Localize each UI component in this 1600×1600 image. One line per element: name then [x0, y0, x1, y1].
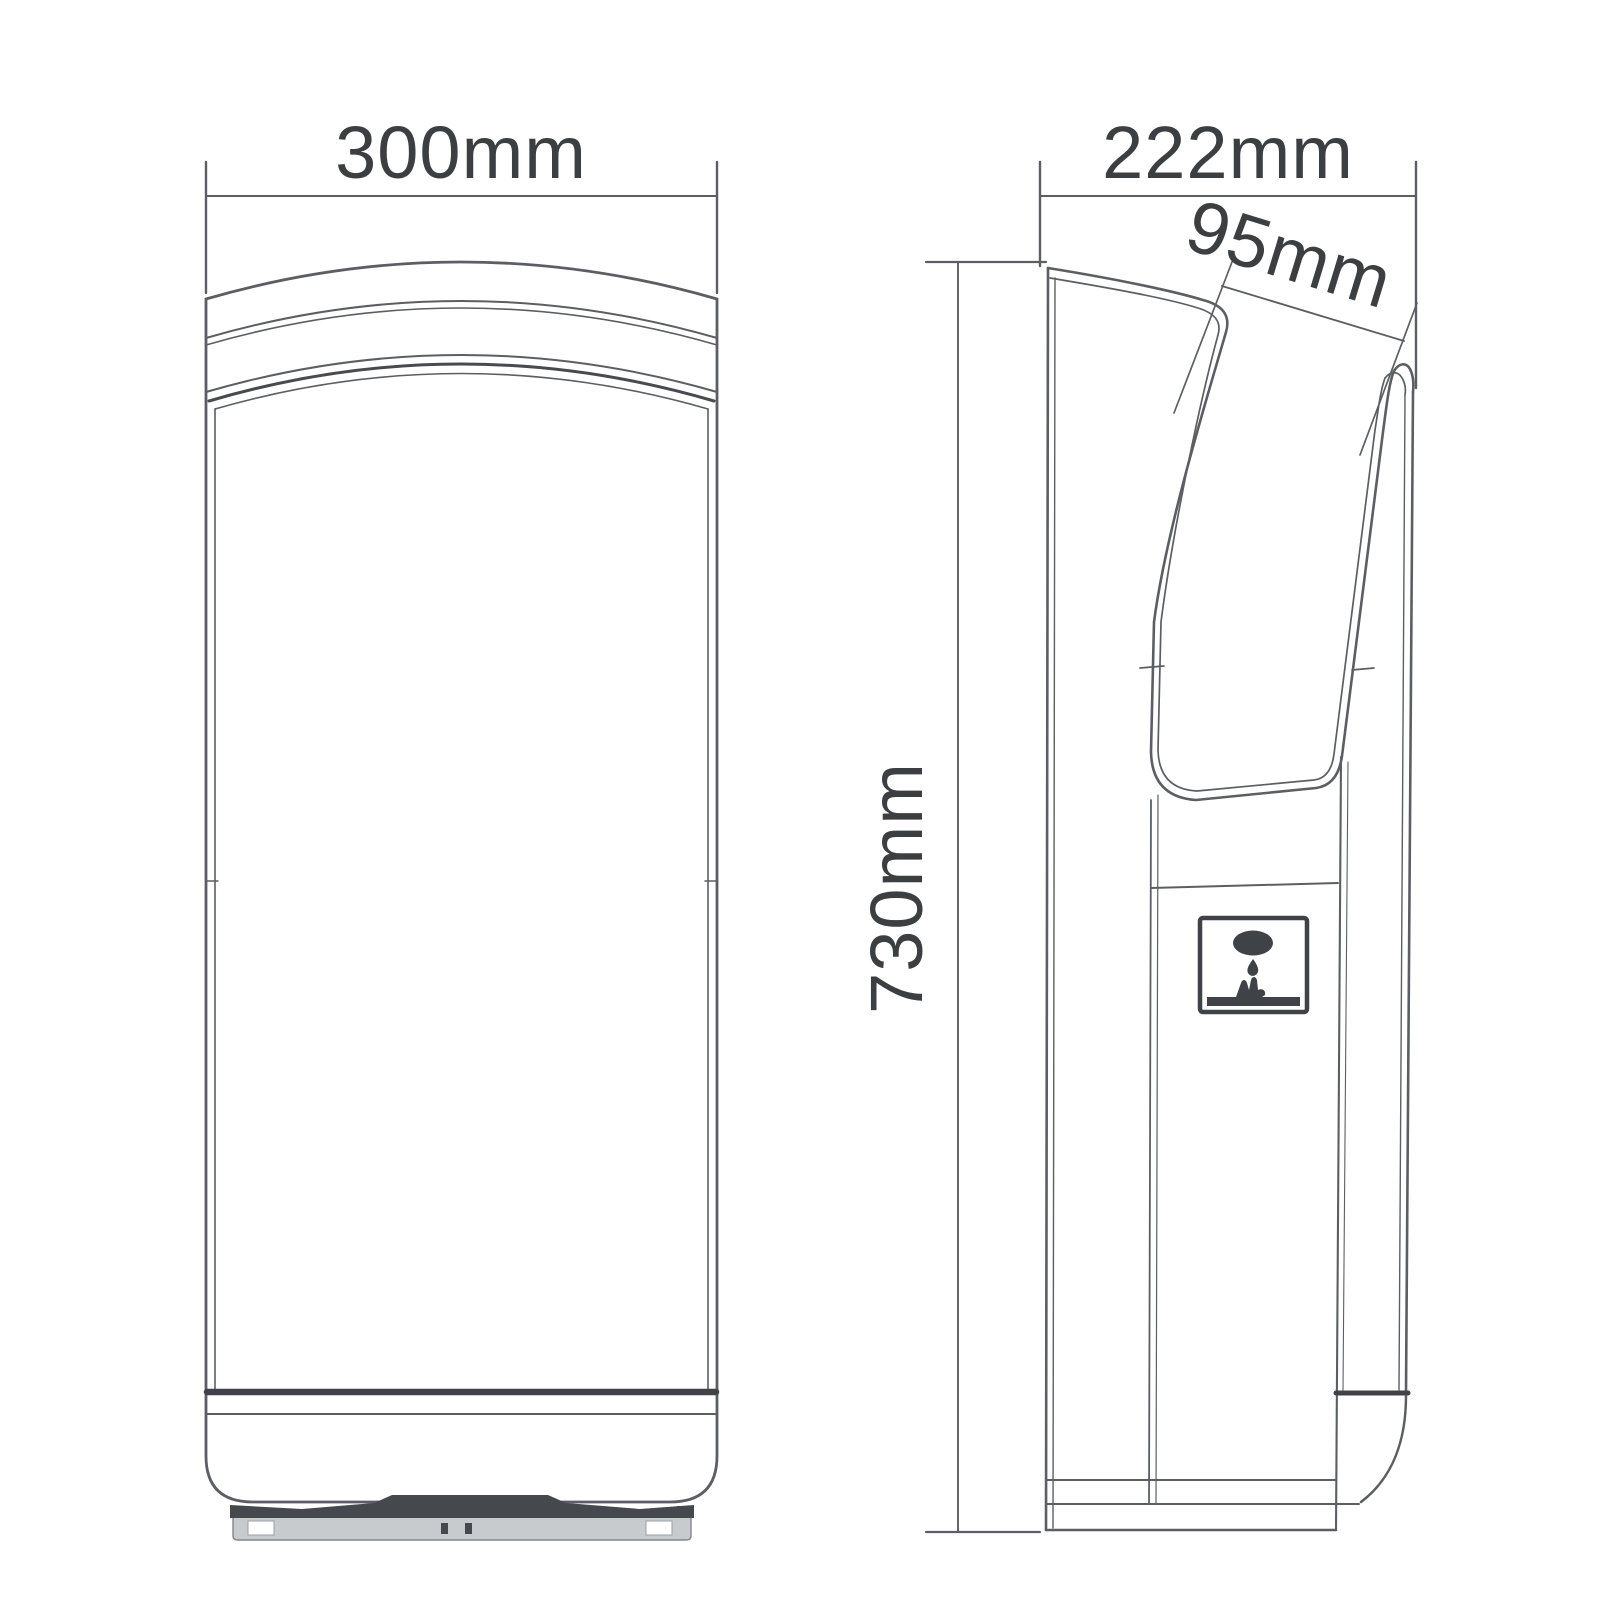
front-cap-band-line: [206, 301, 717, 338]
base-tray-vent: [282, 1512, 316, 1518]
side-front-edge-inner: [1053, 278, 1055, 1528]
base-tray-cutout: [646, 1521, 672, 1535]
dimension-label-width: 300mm: [335, 111, 587, 194]
dimension-extension: [1360, 303, 1417, 455]
side-slot-outline: [1048, 268, 1394, 800]
side-view: [926, 162, 1417, 1532]
side-front-edge: [1046, 268, 1048, 1530]
dimension-label-depth: 222mm: [1102, 111, 1354, 194]
base-tray-vent: [441, 1523, 448, 1534]
wall-break-tick: [1352, 668, 1374, 670]
drawing-canvas: 300mm 222mm 95mm 730mm: [0, 0, 1600, 1600]
front-panel-top-line: [209, 364, 714, 401]
side-rear-section-edge-inner: [1343, 762, 1348, 1390]
front-cap-band-line: [206, 308, 717, 345]
side-blade-tip: [1394, 364, 1413, 392]
front-view: [206, 162, 717, 1540]
dimension-labels: 300mm 222mm 95mm 730mm: [335, 111, 1402, 1014]
base-tray-cutout: [248, 1521, 274, 1535]
side-front-wall-lower-inner: [1156, 795, 1158, 1504]
dimension-label-height: 730mm: [855, 762, 938, 1014]
base-tray-vent: [465, 1523, 472, 1534]
front-panel-inner-arc: [215, 374, 708, 410]
side-rear-edge-inner: [1399, 396, 1405, 1390]
hand-dryer-drawing: 300mm 222mm 95mm 730mm: [0, 0, 1600, 1600]
side-rear-edge: [1406, 392, 1413, 1392]
base-tray-vent: [677, 1506, 686, 1513]
dimension-overall-height: [926, 262, 1046, 1532]
side-front-wall-lower: [1149, 800, 1151, 1504]
side-slot-inner-line: [1050, 278, 1385, 791]
sensor-socket-icon: [1200, 918, 1307, 1012]
side-rear-section-edge: [1336, 757, 1341, 1530]
side-rear-bottom-curve: [1361, 1396, 1406, 1502]
base-tray-vent: [237, 1506, 246, 1513]
side-seam-line: [1151, 883, 1338, 888]
socket-oval: [1233, 931, 1273, 956]
base-tray-vent: [606, 1512, 632, 1518]
socket-bottom-bar: [1207, 997, 1300, 1006]
front-body-outline: [206, 262, 717, 1502]
